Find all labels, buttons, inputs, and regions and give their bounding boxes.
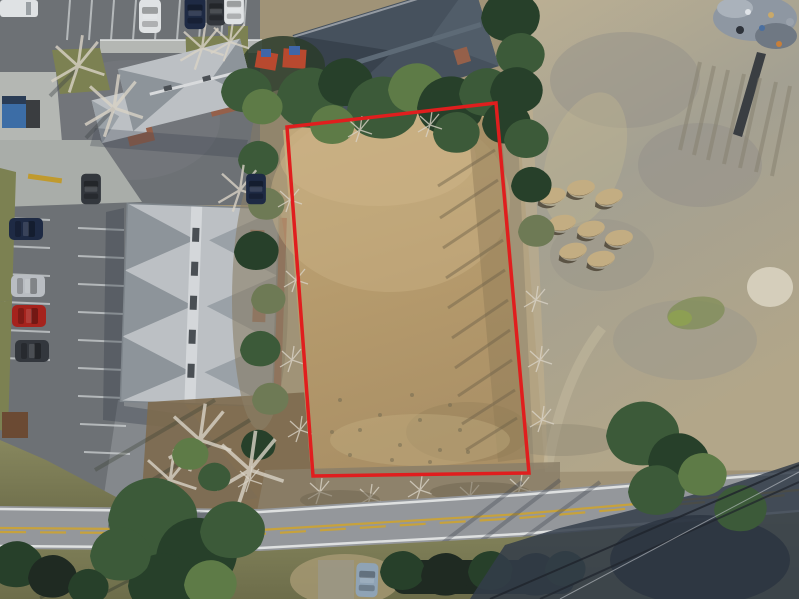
- aerial-photo-canvas: [0, 0, 799, 599]
- car-below-road: [355, 563, 378, 598]
- sand-patch: [747, 267, 793, 307]
- gravel-pulloff: [318, 560, 354, 599]
- dumpster: [2, 96, 40, 128]
- white-truck: [0, 0, 38, 17]
- aerial-photo: [0, 0, 799, 599]
- mulch-patch: [2, 412, 28, 438]
